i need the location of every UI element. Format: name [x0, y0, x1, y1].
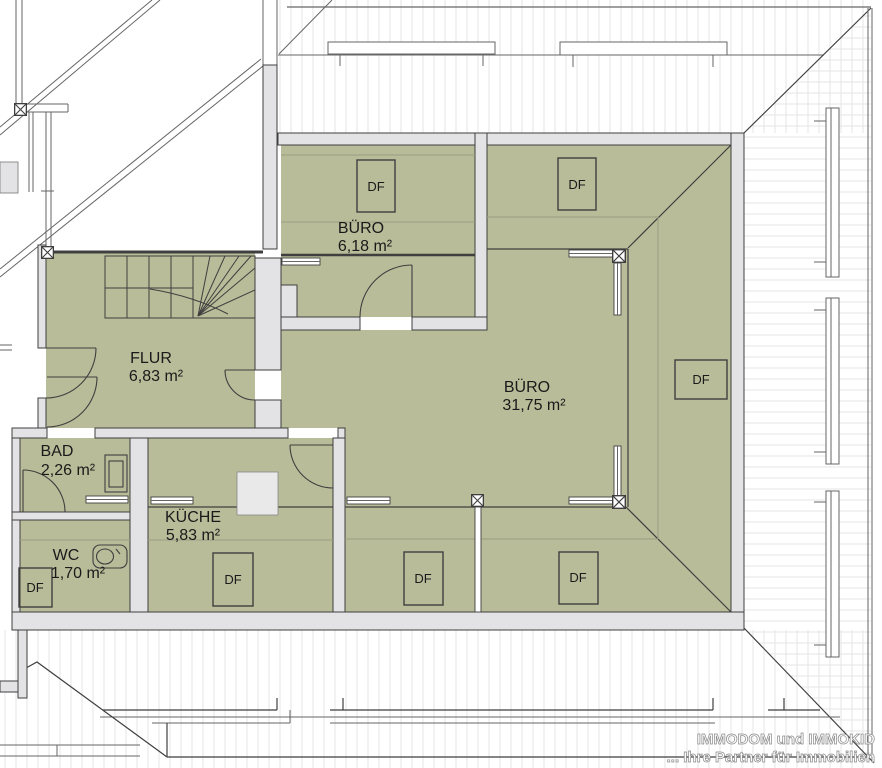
wall-void-right-column [263, 65, 277, 249]
df-label: DF [224, 572, 241, 587]
watermark-line2: ... Ihre Partner für Immobilien [667, 749, 875, 766]
post-marker [613, 496, 626, 509]
post-marker [613, 250, 626, 263]
floorplan-drawing: DF DF DF DF DF DF DF [0, 0, 882, 768]
floorplan-page: DF DF DF DF DF DF DF [0, 0, 882, 768]
wall-buero-klein-right [475, 133, 487, 330]
df-label: DF [414, 571, 431, 586]
wall-mid-column-lower [255, 400, 281, 428]
wall-kueche-right [333, 438, 345, 612]
watermark: IMMODOM und IMMOKID ... Ihre Partner für… [667, 731, 876, 766]
wall-vestibule-notch [281, 285, 297, 317]
wall-flur-left-upper [38, 245, 46, 348]
label-buero-gross-area: 31,75 m² [502, 397, 566, 414]
label-kueche-name: KÜCHE [165, 508, 221, 526]
df-label: DF [692, 372, 709, 387]
rooms [20, 145, 731, 612]
wall-top [278, 133, 744, 145]
label-bad-name: BAD [41, 443, 74, 460]
label-flur-area: 6,83 m² [129, 368, 184, 385]
label-buero-klein-area: 6,18 m² [338, 238, 393, 255]
chimney [237, 472, 278, 515]
low-partition [475, 507, 481, 612]
wall-mid-column-upper [255, 258, 281, 370]
label-kueche-area: 5,83 m² [166, 527, 221, 544]
df-label: DF [26, 580, 43, 595]
wall-flur-left-lower [38, 398, 46, 428]
room-buero-gross-passage [281, 330, 487, 428]
wall-bad-wc [12, 512, 130, 520]
post-marker [472, 495, 484, 507]
void-wall-stub [0, 162, 18, 193]
roof-top-bar-right [560, 42, 727, 55]
roof-top-bar-left [328, 42, 495, 54]
label-bad-area: 2,26 m² [41, 462, 96, 479]
wall-stub-below-wc [18, 630, 27, 698]
wall-kueche-left [130, 438, 148, 612]
label-wc-area: 1,70 m² [51, 565, 106, 582]
label-wc-name: WC [53, 547, 80, 564]
post-marker [15, 104, 27, 116]
df-label: DF [569, 570, 586, 585]
watermark-line1: IMMODOM und IMMOKID [697, 731, 875, 748]
post-marker [42, 247, 54, 259]
df-label: DF [367, 179, 384, 194]
label-buero-klein-name: BÜRO [338, 219, 384, 237]
label-flur-name: FLUR [130, 350, 172, 367]
roof-right-margin [873, 0, 882, 768]
wall-bottom [12, 612, 744, 630]
wall-right [731, 133, 744, 630]
df-label: DF [568, 177, 585, 192]
label-buero-gross-name: BÜRO [504, 378, 550, 396]
